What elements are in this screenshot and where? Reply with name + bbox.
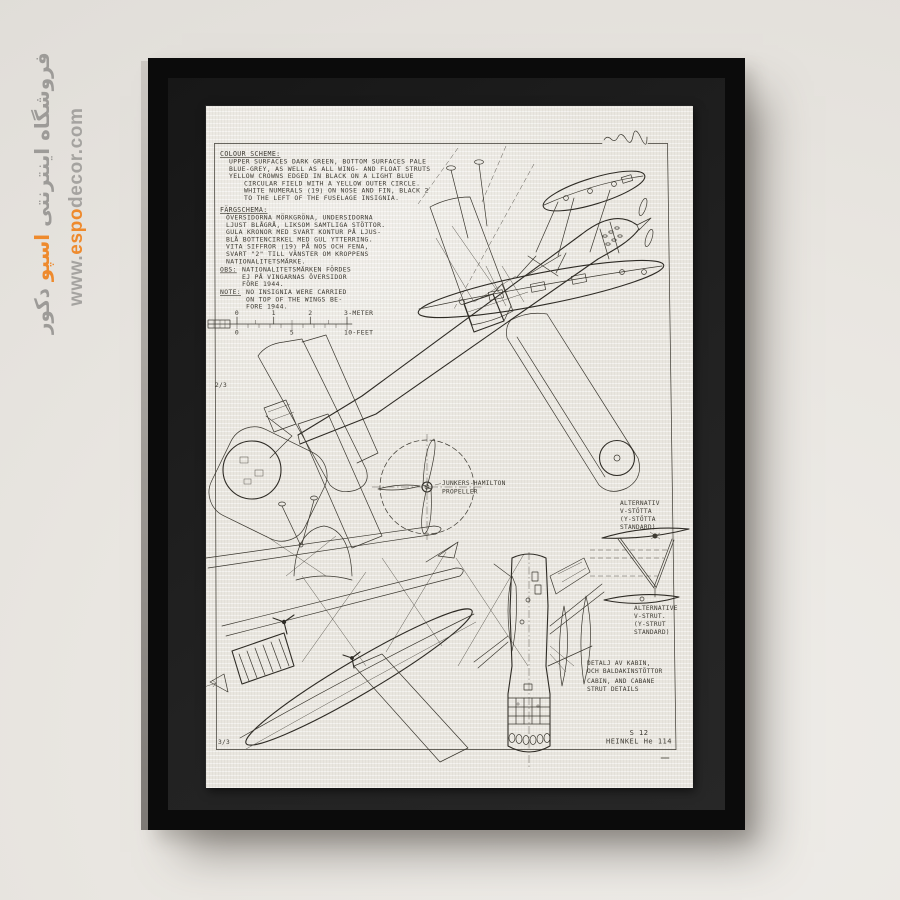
obs-label: OBS: bbox=[220, 266, 237, 274]
strut-label-sv-line: (Y-STÖTTA bbox=[620, 514, 656, 523]
cabin-label-line: DETALJ AV KABIN, bbox=[587, 660, 651, 667]
fargschema-line: NATIONALITETSMÄRKE. bbox=[226, 256, 306, 265]
watermark-url: www.espodecor.com bbox=[66, 108, 88, 307]
product-photo: فروشگاه اینترنتی اسپو دکور www.espodecor… bbox=[0, 0, 900, 900]
signature-squiggle bbox=[604, 131, 647, 144]
note-block: NOTE:NO INSIGNIA WERE CARRIED ON TOP OF … bbox=[220, 288, 347, 311]
watermark-store-pre: فروشگاه اینترنتی bbox=[30, 52, 54, 227]
watermark-store-highlight: اسپو bbox=[30, 234, 54, 281]
sheet-number-lower: 3/3 bbox=[218, 739, 230, 746]
strut-label-sv-line: V-STÖTTA bbox=[620, 506, 652, 515]
crown-roundel bbox=[223, 441, 281, 499]
aircraft-model-code: S 12 bbox=[630, 729, 649, 737]
scale-meter-tick-label: 1 bbox=[272, 309, 276, 317]
note-line: FORE 1944. bbox=[246, 303, 288, 311]
v-strut-assembly bbox=[279, 496, 318, 547]
float-upper bbox=[536, 163, 648, 256]
colour-scheme-line: TO THE LEFT OF THE FUSELAGE INSIGNIA. bbox=[244, 194, 399, 202]
aircraft-name: HEINKEL He 114 bbox=[606, 738, 672, 746]
tail-surfaces bbox=[264, 400, 296, 458]
obs-block: OBS:NATIONALITETSMÄRKEN FÖRDES EJ PÅ VIN… bbox=[220, 265, 351, 289]
strut-label-en-line: ALTERNATIVE bbox=[634, 605, 678, 612]
cabin-label-line: STRUT DETAILS bbox=[587, 686, 639, 693]
propeller-label-line2: PROPELLER bbox=[442, 489, 478, 496]
strut-label-en-line: (Y-STRUT bbox=[634, 621, 666, 628]
strut-label-sv-line: ALTERNATIV bbox=[620, 500, 660, 507]
blueprint-drawing: COLOUR SCHEME: UPPER SURFACES DARK GREEN… bbox=[206, 106, 693, 788]
sheet-number-upper: 2/3 bbox=[215, 382, 227, 389]
obs-line: FÖRE 1944. bbox=[242, 279, 284, 288]
scale-feet-tick-label: 5 bbox=[290, 329, 294, 337]
scale-bar: 0 1 2 3-METER 0 5 10-FEET bbox=[208, 309, 373, 337]
strut-label-en-line: V-STRUT. bbox=[634, 613, 666, 620]
scale-feet-label: 10-FEET bbox=[344, 329, 373, 337]
scale-meter-label: 3-METER bbox=[344, 309, 373, 317]
watermark-store-post: دکور bbox=[30, 288, 54, 334]
propeller-detail: JUNKERS-HAMILTON PROPELLER bbox=[372, 434, 506, 540]
poster-paper: COLOUR SCHEME: UPPER SURFACES DARK GREEN… bbox=[206, 106, 693, 788]
wing-roundel bbox=[600, 441, 635, 476]
picture-frame: COLOUR SCHEME: UPPER SURFACES DARK GREEN… bbox=[148, 58, 745, 830]
cabin-label-line: CABIN, AND CABANE bbox=[587, 678, 655, 685]
frame-bevel bbox=[141, 61, 148, 830]
cabin-label-line: OCH BALDAKINSTÖTTOR bbox=[587, 666, 663, 675]
watermark-store-name: فروشگاه اینترنتی اسپو دکور bbox=[30, 52, 54, 334]
fuselage-dome bbox=[294, 526, 352, 580]
title-block: S 12 HEINKEL He 114 bbox=[606, 729, 672, 746]
watermark-url-post: decor.com bbox=[66, 108, 87, 208]
cabin-detail-view bbox=[456, 552, 604, 768]
propeller-label-line1: JUNKERS-HAMILTON bbox=[442, 480, 506, 487]
fargschema-block: FÄRGSCHEMA: ÖVERSIDORNA MÖRKGRÖNA, UNDER… bbox=[220, 205, 386, 265]
watermark-url-pre: www. bbox=[66, 255, 87, 306]
scale-feet-tick-label: 0 bbox=[235, 329, 239, 337]
underside-front-view-seaplane bbox=[206, 526, 481, 762]
strut-label-en-line: STANDARD) bbox=[634, 629, 670, 636]
engine-block bbox=[206, 633, 294, 692]
float-lower bbox=[415, 249, 667, 328]
main-float bbox=[237, 596, 480, 758]
scale-meter-tick-label: 0 bbox=[235, 309, 239, 317]
note-label: NOTE: bbox=[220, 288, 241, 296]
watermark-url-highlight: espo bbox=[66, 208, 87, 255]
canopy-outline bbox=[508, 576, 517, 651]
cabin-caption: DETALJ AV KABIN, OCH BALDAKINSTÖTTOR CAB… bbox=[587, 660, 663, 693]
scale-meter-tick-label: 2 bbox=[308, 309, 312, 317]
colour-scheme-block: COLOUR SCHEME: UPPER SURFACES DARK GREEN… bbox=[220, 150, 430, 202]
